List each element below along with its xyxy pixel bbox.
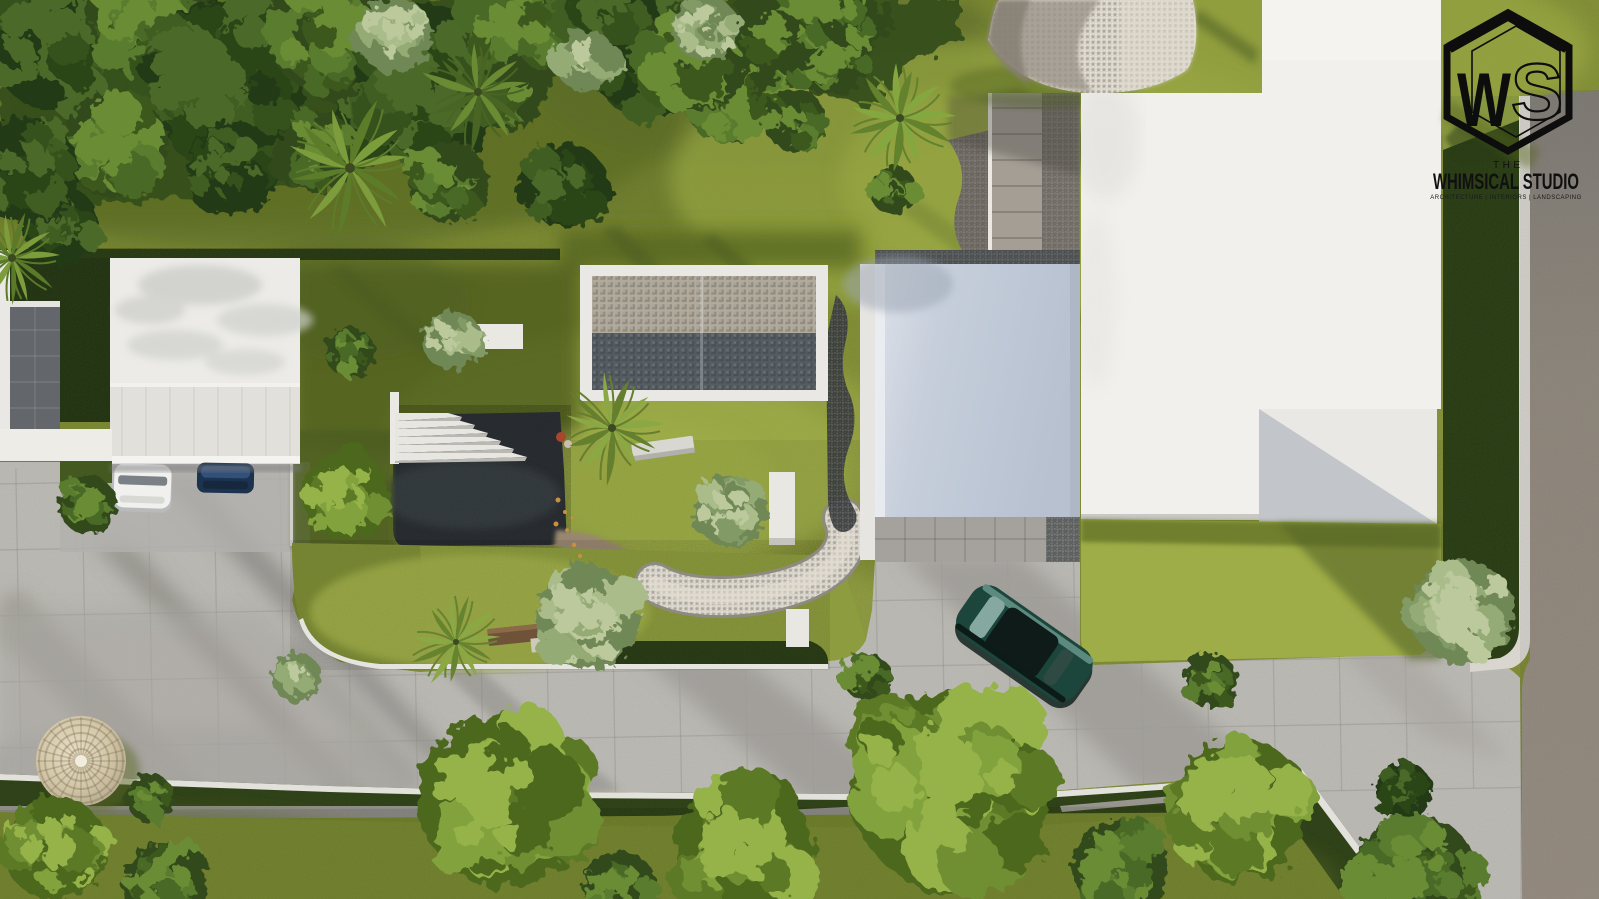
svg-text:WHIMSICAL STUDIO: WHIMSICAL STUDIO [1433, 169, 1579, 194]
svg-text:ARCHITECTURE | INTERIORS | LAN: ARCHITECTURE | INTERIORS | LANDSCAPING [1430, 195, 1581, 201]
svg-text:S: S [1511, 47, 1563, 136]
svg-text:W: W [1457, 58, 1511, 143]
